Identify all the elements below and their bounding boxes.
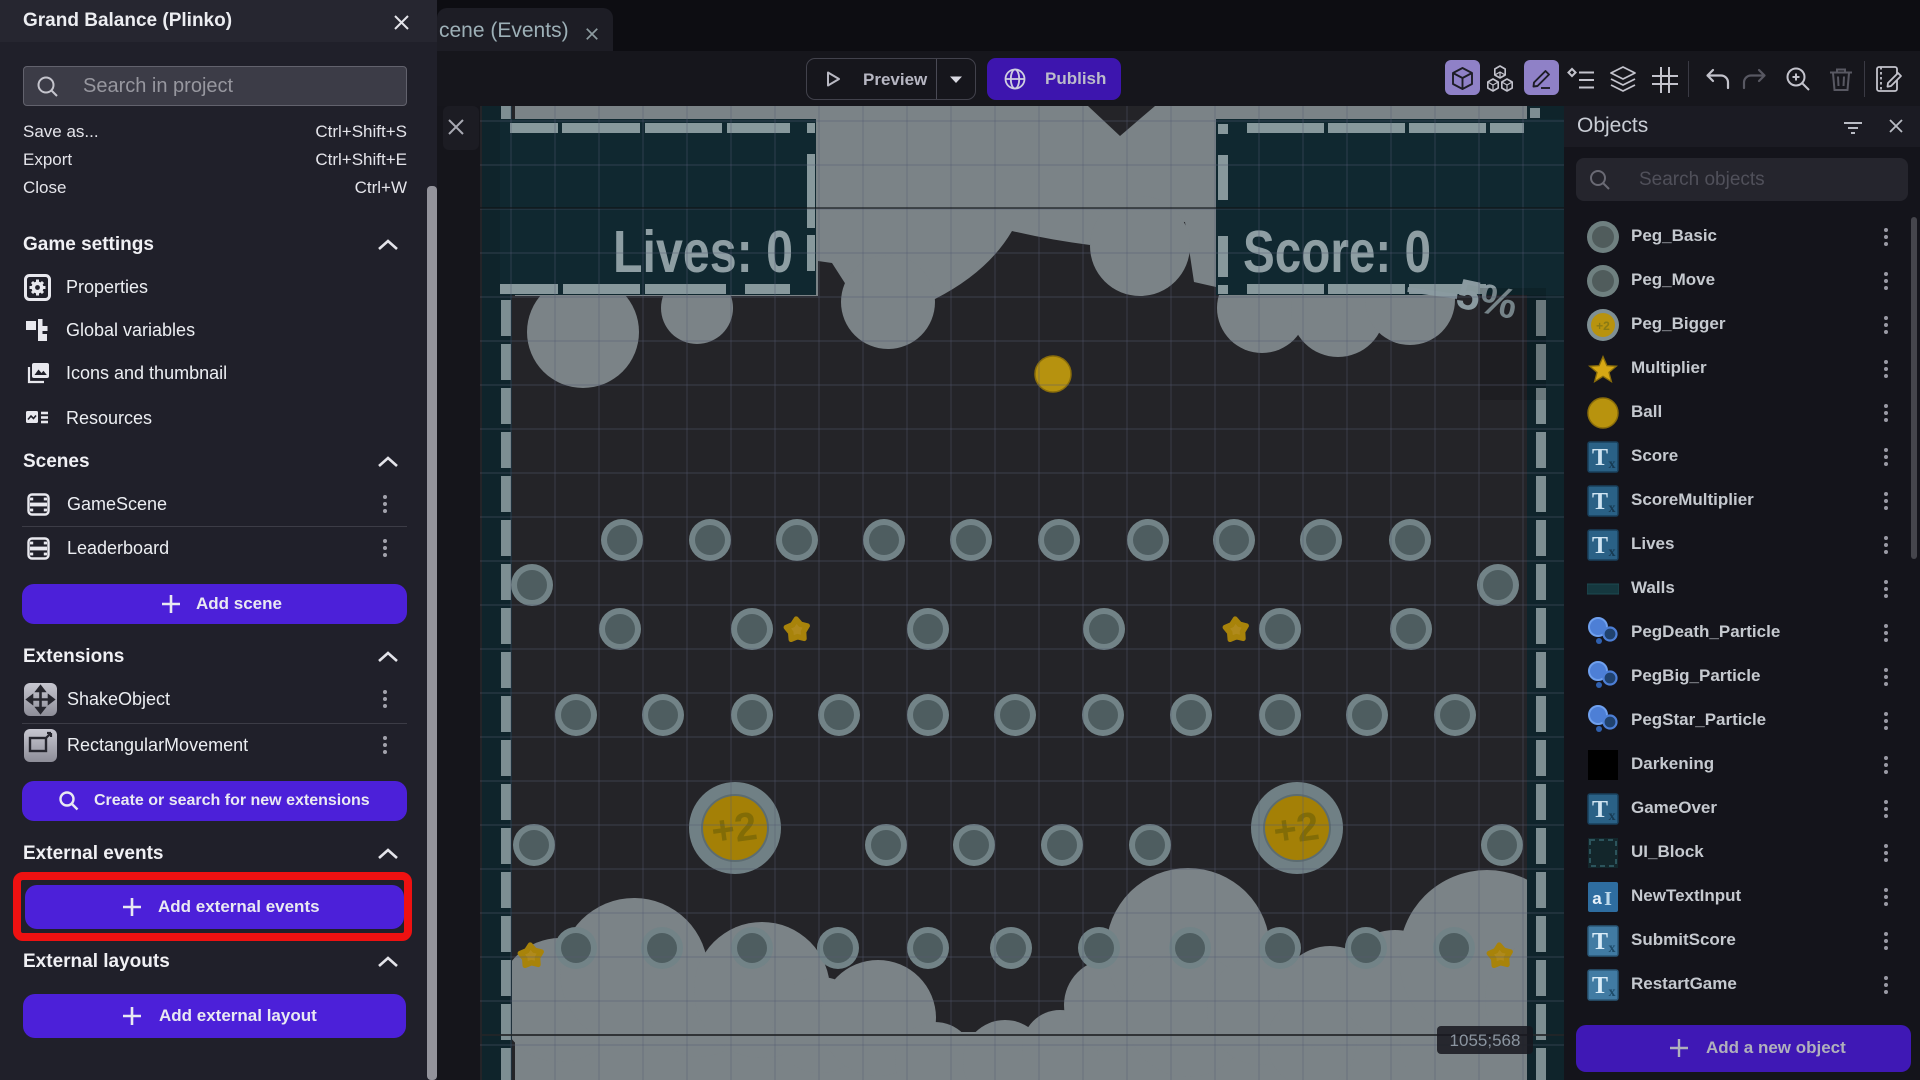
- svg-text:T: T: [1592, 929, 1608, 955]
- svg-text:T: T: [1592, 797, 1608, 823]
- svg-text:x: x: [1609, 941, 1616, 956]
- svg-text:Score: 0: Score: 0: [1243, 219, 1431, 285]
- svg-text:Lives: 0: Lives: 0: [613, 219, 793, 285]
- svg-text:T: T: [1592, 445, 1608, 471]
- svg-text:x: x: [1609, 501, 1616, 516]
- svg-text:x: x: [1609, 545, 1616, 560]
- svg-text:x: x: [1609, 985, 1616, 1000]
- svg-text:1055;568: 1055;568: [1450, 1031, 1521, 1050]
- svg-text:a: a: [1592, 889, 1602, 908]
- svg-text:T: T: [1592, 533, 1608, 559]
- svg-text:+2: +2: [1596, 319, 1610, 333]
- svg-text:I: I: [1604, 888, 1612, 910]
- svg-text:T: T: [1592, 973, 1608, 999]
- svg-text:T: T: [1592, 489, 1608, 515]
- svg-text:x: x: [1609, 809, 1616, 824]
- svg-text:x: x: [1609, 457, 1616, 472]
